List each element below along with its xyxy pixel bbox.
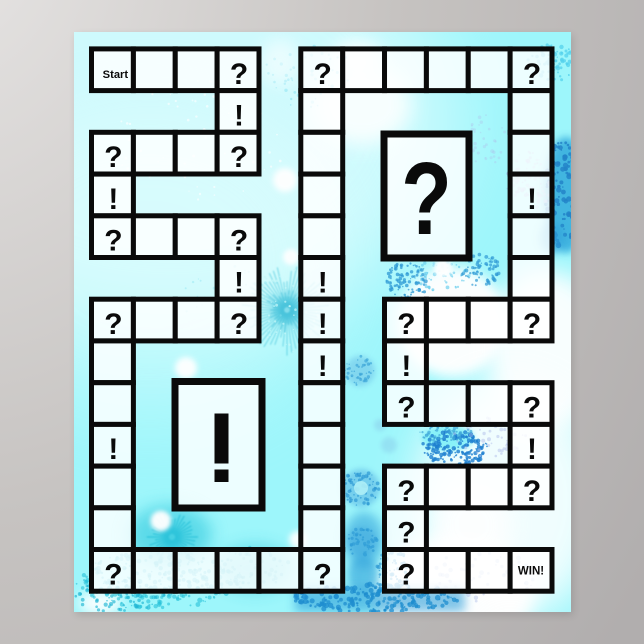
svg-text:?: ? xyxy=(104,225,122,258)
svg-text:?: ? xyxy=(230,141,248,174)
svg-text:!: ! xyxy=(401,350,411,383)
svg-text:?: ? xyxy=(230,308,248,341)
svg-text:Start: Start xyxy=(103,69,129,81)
svg-text:?: ? xyxy=(230,58,248,91)
svg-text:!: ! xyxy=(234,266,244,299)
svg-text:?: ? xyxy=(397,517,415,550)
svg-text:!: ! xyxy=(234,100,244,133)
svg-text:?: ? xyxy=(230,225,248,258)
svg-text:?: ? xyxy=(523,392,541,425)
svg-text:?: ? xyxy=(397,475,415,508)
svg-text:?: ? xyxy=(104,558,122,591)
svg-text:?: ? xyxy=(314,558,332,591)
svg-text:?: ? xyxy=(401,140,452,256)
svg-text:?: ? xyxy=(397,308,415,341)
svg-text:!: ! xyxy=(527,433,537,466)
svg-text:!: ! xyxy=(318,308,328,341)
svg-text:?: ? xyxy=(397,392,415,425)
svg-text:?: ? xyxy=(523,475,541,508)
svg-text:WIN!: WIN! xyxy=(518,565,544,577)
svg-text:!: ! xyxy=(108,183,118,216)
svg-text:!: ! xyxy=(318,266,328,299)
svg-text:?: ? xyxy=(397,558,415,591)
svg-text:!: ! xyxy=(527,183,537,216)
svg-text:?: ? xyxy=(314,58,332,91)
svg-text:!: ! xyxy=(318,350,328,383)
svg-text:?: ? xyxy=(523,308,541,341)
svg-text:!: ! xyxy=(108,433,118,466)
svg-text:?: ? xyxy=(523,58,541,91)
svg-text:?: ? xyxy=(104,308,122,341)
svg-text:?: ? xyxy=(104,141,122,174)
